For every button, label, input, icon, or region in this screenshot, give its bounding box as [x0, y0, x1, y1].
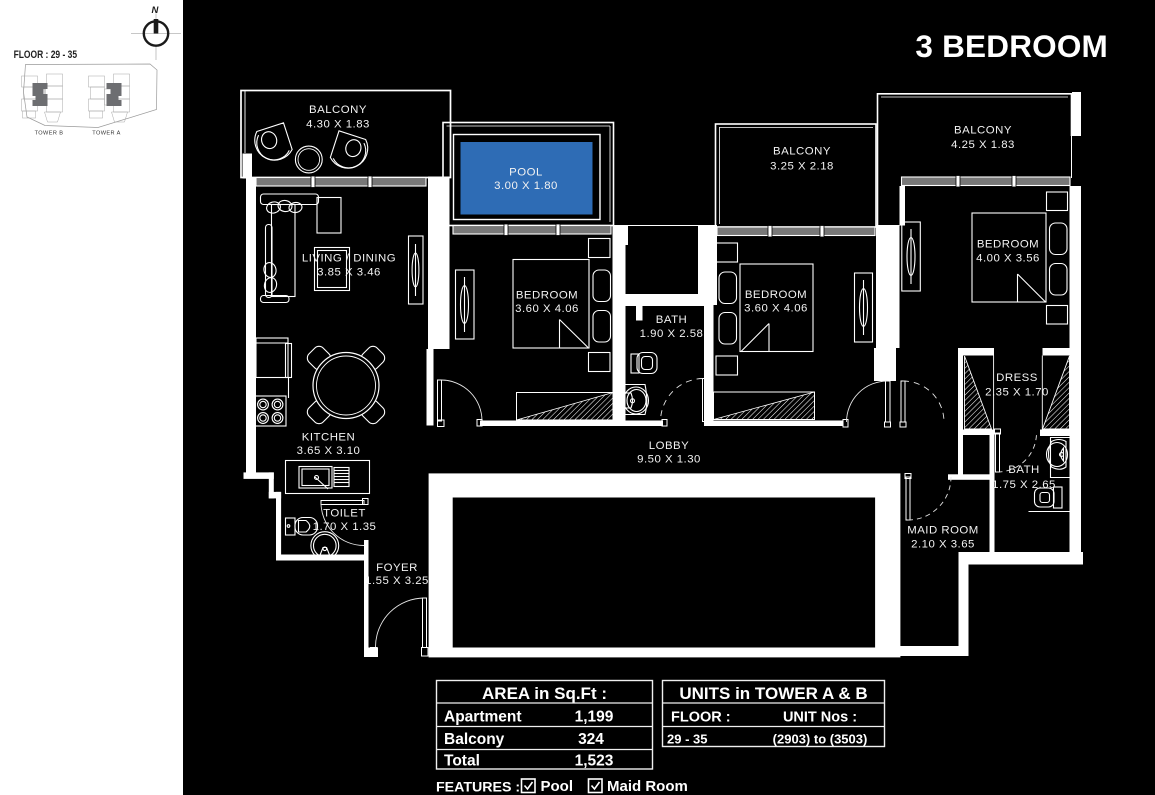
svg-text:POOL: POOL	[509, 167, 543, 179]
svg-text:4.30 X 1.83: 4.30 X 1.83	[306, 119, 370, 131]
svg-text:(2903) to (3503): (2903) to (3503)	[773, 732, 868, 747]
svg-text:Apartment: Apartment	[444, 709, 522, 726]
svg-text:FLOOR :: FLOOR :	[671, 710, 731, 726]
svg-text:3.60 X 4.06: 3.60 X 4.06	[515, 303, 579, 315]
svg-text:4.25 X 1.83: 4.25 X 1.83	[951, 139, 1015, 151]
svg-text:3.25 X 2.18: 3.25 X 2.18	[770, 161, 834, 173]
svg-text:AREA in Sq.Ft :: AREA in Sq.Ft :	[482, 684, 607, 703]
svg-text:1,199: 1,199	[575, 709, 614, 726]
svg-text:29 - 35: 29 - 35	[667, 732, 707, 747]
svg-text:1,523: 1,523	[575, 753, 614, 770]
svg-text:3.85 X 3.46: 3.85 X 3.46	[317, 267, 381, 279]
svg-text:3 BEDROOM: 3 BEDROOM	[915, 28, 1108, 64]
svg-text:FEATURES :: FEATURES :	[436, 780, 520, 795]
svg-text:N: N	[152, 5, 160, 16]
svg-text:9.50 X 1.30: 9.50 X 1.30	[637, 454, 701, 466]
svg-text:TOILET: TOILET	[323, 508, 366, 520]
svg-text:UNITS in TOWER A & B: UNITS in TOWER A & B	[679, 684, 867, 703]
svg-text:2.10 X 3.65: 2.10 X 3.65	[911, 539, 975, 551]
svg-text:Total: Total	[444, 753, 480, 770]
svg-text:Pool: Pool	[541, 778, 574, 795]
svg-text:3.65 X 3.10: 3.65 X 3.10	[297, 445, 361, 457]
svg-text:1.55 X 3.25: 1.55 X 3.25	[365, 575, 429, 587]
svg-text:BEDROOM: BEDROOM	[977, 239, 1039, 251]
svg-text:BALCONY: BALCONY	[954, 125, 1012, 137]
svg-text:BATH: BATH	[1008, 464, 1040, 476]
svg-text:KITCHEN: KITCHEN	[302, 432, 356, 444]
svg-text:BEDROOM: BEDROOM	[745, 289, 807, 301]
svg-text:TOWER A: TOWER A	[92, 131, 121, 137]
svg-text:LOBBY: LOBBY	[649, 440, 690, 452]
svg-text:Balcony: Balcony	[444, 731, 505, 748]
svg-text:1.90 X 2.58: 1.90 X 2.58	[640, 328, 704, 340]
svg-text:Maid Room: Maid Room	[607, 778, 688, 795]
svg-text:UNIT Nos :: UNIT Nos :	[783, 710, 857, 726]
svg-text:BALCONY: BALCONY	[773, 146, 831, 158]
svg-text:BATH: BATH	[656, 314, 688, 326]
svg-text:2.35 X 1.70: 2.35 X 1.70	[985, 387, 1049, 399]
svg-text:324: 324	[578, 731, 604, 748]
svg-text:3.00 X 1.80: 3.00 X 1.80	[494, 180, 558, 192]
svg-text:BEDROOM: BEDROOM	[516, 290, 578, 302]
svg-text:FLOOR : 29 - 35: FLOOR : 29 - 35	[14, 49, 78, 61]
svg-text:BALCONY: BALCONY	[309, 104, 367, 116]
svg-text:TOWER B: TOWER B	[35, 131, 64, 137]
svg-text:LIVING / DINING: LIVING / DINING	[302, 253, 396, 265]
svg-text:DRESS: DRESS	[996, 372, 1038, 384]
svg-text:3.60 X 4.06: 3.60 X 4.06	[744, 303, 808, 315]
svg-text:FOYER: FOYER	[376, 562, 418, 574]
svg-text:MAID ROOM: MAID ROOM	[907, 525, 979, 537]
svg-text:1.70 X 1.35: 1.70 X 1.35	[313, 521, 377, 533]
svg-text:4.00 X 3.56: 4.00 X 3.56	[976, 253, 1040, 265]
svg-text:1.75 X 2.65: 1.75 X 2.65	[992, 479, 1056, 491]
